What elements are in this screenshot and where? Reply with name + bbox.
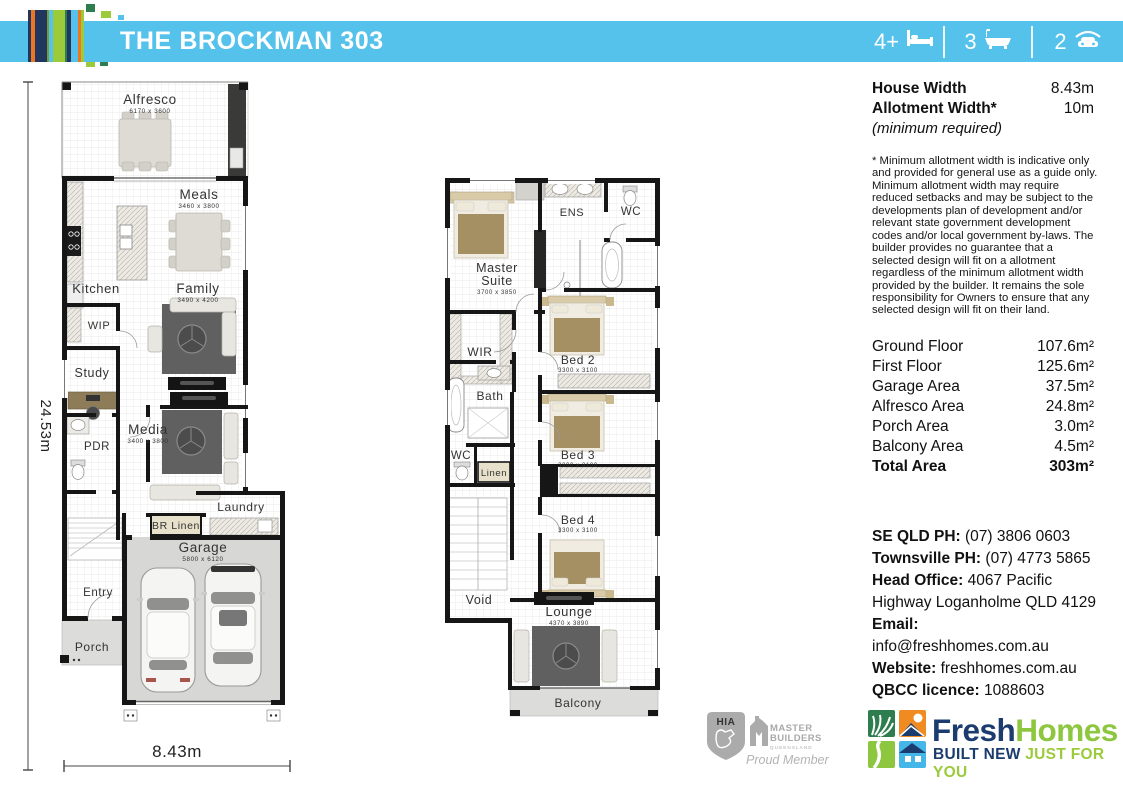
svg-text:Laundry: Laundry: [217, 500, 265, 514]
room-ens: ENS: [560, 207, 584, 219]
bed-icon: [906, 29, 934, 54]
website-link[interactable]: freshhomes.com.au: [941, 660, 1077, 677]
laundry-sink: [258, 520, 272, 532]
website-row: Website: freshhomes.com.au: [872, 658, 1098, 680]
stairs: [68, 518, 122, 560]
meals-dining-set: [169, 213, 230, 271]
room-br-linen: BR Linen: [152, 520, 200, 532]
svg-text:PDR: PDR: [84, 441, 110, 453]
house-width-value: 8.43m: [1051, 79, 1094, 99]
room-linen: Linen: [481, 468, 507, 479]
allotment-disclaimer: * Minimum allotment width is indicative …: [872, 155, 1098, 317]
svg-text:6170 x 3600: 6170 x 3600: [129, 108, 170, 115]
area-row-first: First Floor125.6m²: [872, 357, 1094, 377]
svg-text:WIR: WIR: [467, 345, 492, 359]
qbcc-row: QBCC licence: 1088603: [872, 680, 1098, 702]
svg-text:WC: WC: [451, 450, 471, 462]
room-garage: Garage 5800 x 6120: [179, 540, 228, 563]
car-right: [201, 564, 265, 686]
allotment-width-value: 10m: [1064, 99, 1094, 119]
bed3-furniture: [541, 394, 614, 451]
svg-text:3400 x 3800: 3400 x 3800: [127, 438, 168, 445]
confetti-square: [86, 4, 95, 12]
brand-stripes-logo: [28, 10, 84, 62]
svg-text:Bed 2: Bed 2: [561, 353, 595, 367]
svg-text:3460 x 3800: 3460 x 3800: [178, 203, 219, 210]
room-entry: Entry: [83, 587, 113, 599]
room-wc-mid: WC: [451, 450, 471, 462]
stat-baths: 3: [945, 21, 1031, 62]
header-stats: 4+ 3 2: [865, 21, 1123, 62]
proud-member-text: Proud Member: [746, 753, 829, 767]
bed4-furniture: [541, 540, 614, 599]
confetti-square: [100, 62, 108, 66]
area-row-total: Total Area303m²: [872, 457, 1094, 477]
width-specs: House Width 8.43m Allotment Width* 10m (…: [872, 79, 1094, 139]
area-row-ground: Ground Floor107.6m²: [872, 337, 1094, 357]
baths-count: 3: [964, 29, 976, 55]
areas-table: Ground Floor107.6m² First Floor125.6m² G…: [872, 337, 1094, 477]
master-wardrobe: [534, 230, 546, 288]
house-width-label: House Width: [872, 79, 967, 99]
void-stairs: [449, 498, 507, 590]
freshhomes-logo-icon: [868, 710, 926, 768]
svg-text:Linen: Linen: [481, 468, 507, 479]
svg-text:Alfresco: Alfresco: [123, 92, 177, 107]
room-balcony: Balcony: [555, 696, 602, 710]
phone-townsville: Townsville PH: (07) 4773 5865: [872, 548, 1098, 570]
alfresco-dining-set: [119, 112, 171, 171]
head-office-address: Head Office: 4067 Pacific Highway Loganh…: [872, 570, 1098, 614]
email-link[interactable]: info@freshhomes.com.au: [872, 638, 1049, 655]
minimum-required-note: (minimum required): [872, 119, 1094, 139]
svg-text:4370 x 3890: 4370 x 3890: [549, 621, 589, 627]
allotment-width-row: Allotment Width* 10m: [872, 99, 1094, 119]
hia-logo: HIA: [707, 712, 745, 760]
svg-text:Kitchen: Kitchen: [72, 281, 120, 296]
svg-text:ENS: ENS: [560, 207, 584, 219]
master-builders-icon: [750, 716, 768, 746]
wip-shelves: [67, 308, 81, 342]
cars-count: 2: [1054, 29, 1066, 55]
svg-text:Master: Master: [476, 261, 518, 275]
room-kitchen: Kitchen: [72, 281, 120, 296]
svg-text:3300 x 3100: 3300 x 3100: [558, 368, 598, 374]
svg-text:Study: Study: [75, 366, 110, 380]
svg-text:3300 x 3100: 3300 x 3100: [558, 463, 598, 469]
svg-text:Family: Family: [176, 281, 219, 296]
svg-text:Garage: Garage: [179, 540, 228, 555]
room-pdr: PDR: [84, 441, 110, 453]
room-porch: Porch: [75, 640, 109, 654]
svg-text:Meals: Meals: [179, 187, 218, 202]
confetti-square: [118, 15, 124, 20]
room-bed3: Bed 3 3300 x 3100: [558, 448, 598, 469]
svg-text:WC: WC: [621, 206, 641, 218]
master-builders-wordmark: MASTER BUILDERS QUEENSLAND: [770, 724, 822, 753]
room-study: Study: [75, 366, 110, 380]
svg-text:Void: Void: [466, 593, 493, 607]
kitchen-island: [117, 206, 147, 280]
area-row-balcony: Balcony Area4.5m²: [872, 437, 1094, 457]
room-media: Media 3400 x 3800: [127, 422, 168, 445]
width-dimension: 8.43m: [64, 742, 290, 772]
room-void: Void: [466, 593, 493, 607]
room-lounge: Lounge 4370 x 3890: [546, 604, 593, 627]
room-wir: WIR: [467, 345, 492, 359]
room-alfresco: Alfresco 6170 x 3600: [123, 92, 177, 115]
svg-text:Suite: Suite: [481, 274, 513, 288]
svg-text:Balcony: Balcony: [555, 696, 602, 710]
email-row: Email: info@freshhomes.com.au: [872, 614, 1098, 658]
freshhomes-tagline: BUILT NEW JUST FOR YOU: [933, 746, 1123, 782]
beds-count: 4+: [874, 29, 899, 55]
room-laundry: Laundry: [217, 500, 265, 514]
svg-text:Entry: Entry: [83, 587, 113, 599]
room-master-suite: Master Suite 3700 x 3850: [476, 261, 518, 296]
stat-separator: [943, 26, 945, 58]
contact-block: SE QLD PH: (07) 3806 0603 Townsville PH:…: [872, 526, 1098, 702]
room-family: Family 3490 x 4200: [176, 281, 219, 304]
svg-text:Bath: Bath: [476, 389, 503, 403]
stat-cars: 2: [1033, 21, 1123, 62]
phone-se-qld: SE QLD PH: (07) 3806 0603: [872, 526, 1098, 548]
svg-text:3700 x 3850: 3700 x 3850: [477, 290, 517, 296]
svg-text:Lounge: Lounge: [546, 604, 593, 619]
svg-text:Bed 3: Bed 3: [561, 448, 595, 462]
svg-text:BR Linen: BR Linen: [152, 520, 200, 532]
svg-text:5800 x 6120: 5800 x 6120: [182, 556, 223, 563]
depth-dimension-label: 24.53m: [37, 399, 54, 452]
confetti-square: [86, 62, 95, 67]
svg-text:Bed 4: Bed 4: [561, 513, 595, 527]
depth-dimension: 24.53m: [23, 82, 54, 770]
allotment-width-label: Allotment Width*: [872, 99, 997, 119]
area-row-garage: Garage Area37.5m²: [872, 377, 1094, 397]
room-wc-top: WC: [621, 206, 641, 218]
alfresco-bbq-bench: [228, 84, 246, 176]
stat-separator: [1031, 26, 1033, 58]
stat-beds: 4+: [865, 21, 943, 62]
width-dimension-label: 8.43m: [152, 742, 202, 761]
room-bed4: Bed 4 3300 x 3100: [558, 513, 598, 534]
svg-text:Media: Media: [128, 422, 168, 437]
ground-floor-plan: 24.53m: [18, 75, 300, 775]
svg-text:3300 x 3100: 3300 x 3100: [558, 528, 598, 534]
area-row-alfresco: Alfresco Area24.8m²: [872, 397, 1094, 417]
room-meals: Meals 3460 x 3800: [178, 187, 219, 210]
first-floor-plan: Master Suite 3700 x 3850 ENS WC WIR Bed …: [428, 168, 672, 732]
svg-text:HIA: HIA: [716, 717, 735, 728]
freshhomes-wordmark: FreshHomes: [932, 712, 1118, 749]
bath-icon: [984, 29, 1012, 54]
car-icon: [1074, 29, 1102, 54]
car-left: [137, 568, 199, 692]
svg-text:WIP: WIP: [88, 320, 111, 332]
confetti-square: [101, 11, 111, 18]
room-bed2: Bed 2 3300 x 3100: [558, 353, 598, 374]
page-title: THE BROCKMAN 303: [120, 21, 384, 62]
area-row-porch: Porch Area3.0m²: [872, 417, 1094, 437]
brochure-page: THE BROCKMAN 303 4+ 3: [0, 0, 1123, 794]
setout-ticks: [124, 710, 280, 721]
svg-text:3490 x 4200: 3490 x 4200: [177, 297, 218, 304]
room-wip: WIP: [88, 320, 111, 332]
svg-text:Porch: Porch: [75, 640, 109, 654]
house-width-row: House Width 8.43m: [872, 79, 1094, 99]
room-bath: Bath: [476, 389, 503, 403]
wc-top-fixtures: [623, 186, 637, 206]
